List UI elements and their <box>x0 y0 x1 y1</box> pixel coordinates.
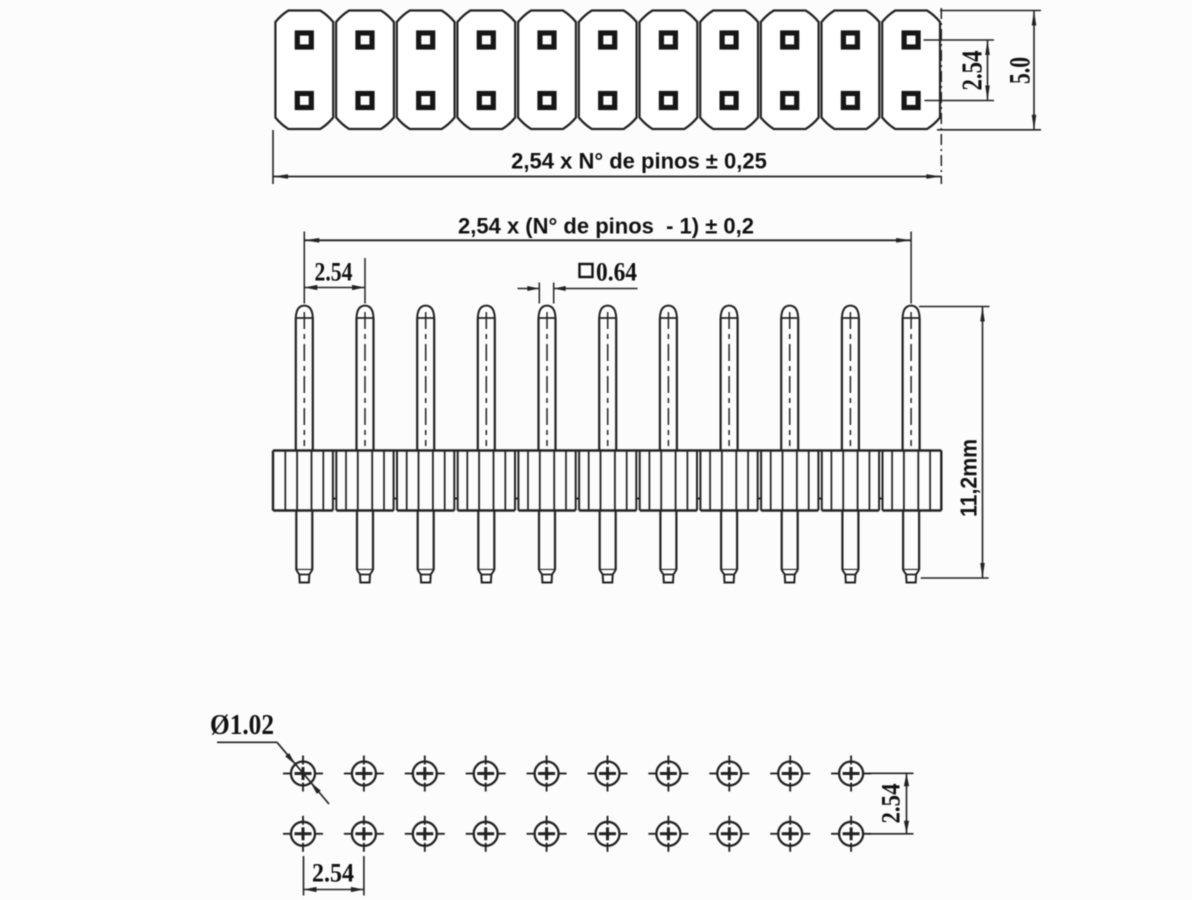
svg-text:5.0: 5.0 <box>1004 57 1037 84</box>
svg-text:Ø1.02: Ø1.02 <box>210 710 274 741</box>
svg-text:2.54: 2.54 <box>877 784 906 824</box>
svg-text:11,2mm: 11,2mm <box>956 439 982 517</box>
svg-text:2.54: 2.54 <box>315 258 353 287</box>
svg-text:2.54: 2.54 <box>312 859 354 888</box>
svg-text:2,54 x N° de pinos ± 0,25: 2,54 x N° de pinos ± 0,25 <box>511 149 767 174</box>
svg-text:0.64: 0.64 <box>596 258 637 287</box>
svg-text:2,54 x (N° de pinos - 1) ± 0,: 2,54 x (N° de pinos - 1) ± 0,2 <box>458 214 754 239</box>
svg-text:2.54: 2.54 <box>958 51 989 91</box>
